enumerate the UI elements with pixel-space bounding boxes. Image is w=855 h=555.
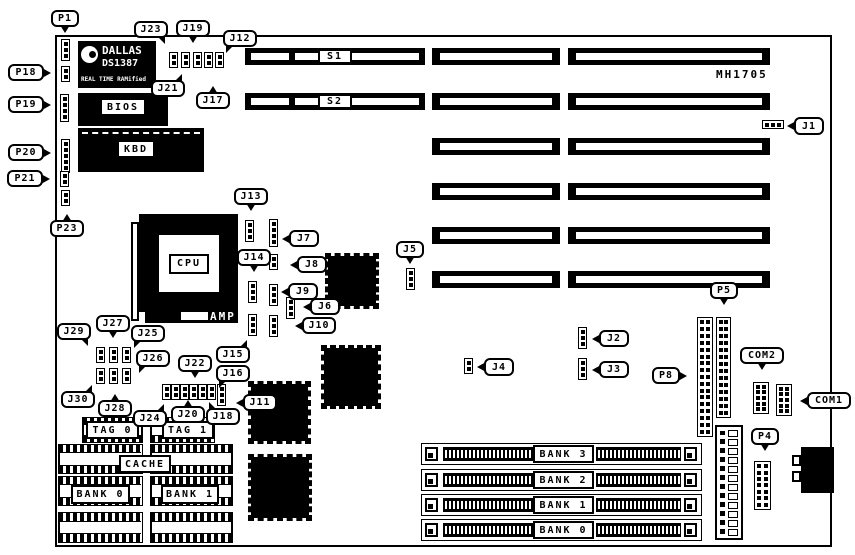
header-pin — [756, 390, 760, 394]
qfp-c — [248, 381, 311, 444]
callout-pointer — [188, 35, 198, 43]
jumper-pin — [467, 361, 471, 365]
label-bank0-cache: BANK 0 — [71, 485, 130, 504]
jumper-pin — [248, 229, 252, 233]
jumper-pin — [581, 361, 585, 365]
callout-p4: P4 — [751, 428, 779, 445]
callout-pointer — [678, 371, 687, 381]
power-pin — [728, 484, 738, 491]
jumper-pin — [183, 393, 187, 397]
header-pin — [706, 423, 710, 427]
label-cache: CACHE — [119, 455, 171, 473]
callout-j13: J13 — [234, 188, 268, 205]
expansion-slot-right-1 — [568, 48, 770, 65]
header-pin — [724, 411, 728, 415]
header-pin — [706, 389, 710, 393]
callout-pointer — [134, 340, 142, 348]
slot-opening — [576, 53, 762, 60]
simm-label-simm-bank3: BANK 3 — [533, 445, 594, 463]
callout-pointer — [42, 100, 51, 110]
jumper-pin — [64, 199, 68, 203]
jumper-pin — [64, 154, 68, 158]
slot-opening — [440, 143, 552, 150]
jumper-pin — [248, 235, 252, 239]
jumper-pin — [64, 75, 68, 79]
header-pin — [756, 385, 760, 389]
slot-opening — [251, 98, 289, 105]
callout-pointer — [219, 380, 227, 388]
header-pin — [719, 355, 723, 359]
jumper-pin — [218, 61, 222, 65]
header-pin — [724, 397, 728, 401]
header-pin — [779, 404, 783, 408]
power-pin — [728, 430, 738, 437]
callout-p1: P1 — [51, 10, 79, 27]
callout-pointer — [760, 443, 770, 451]
jumper-pin — [251, 296, 255, 300]
simm-latch-right — [684, 473, 697, 487]
callout-pointer — [226, 45, 234, 53]
slot-opening — [576, 232, 762, 239]
jumper-j7 — [269, 219, 278, 247]
callout-j30: J30 — [61, 391, 95, 408]
expansion-slot-right-3 — [568, 138, 770, 155]
header-pin — [762, 396, 766, 400]
jumper-pin — [248, 223, 252, 227]
kbd-chip-notch — [82, 132, 200, 134]
jumper-pin — [207, 61, 211, 65]
simm-contacts — [596, 523, 681, 537]
callout-pointer — [41, 174, 50, 184]
header-pin — [724, 320, 728, 324]
power-connector — [715, 425, 743, 540]
jumper-j15 — [248, 314, 257, 336]
jumper-pin — [409, 271, 413, 275]
expansion-slot-mid-3 — [432, 138, 560, 155]
header-pin — [785, 404, 789, 408]
callout-pointer — [174, 74, 182, 82]
callout-j3: J3 — [599, 361, 629, 378]
header-pin — [706, 348, 710, 352]
callout-j5: J5 — [396, 241, 424, 258]
din-mount-tab — [792, 471, 801, 482]
jumper-pin — [289, 306, 293, 310]
jumper-pin — [251, 317, 255, 321]
jumper-j26 — [122, 368, 131, 384]
jumper-pin — [172, 55, 176, 59]
header-pin — [756, 407, 760, 411]
callout-pointer — [60, 25, 70, 33]
jumper-pin — [174, 387, 178, 391]
jumper-j25 — [122, 347, 131, 363]
header-pin — [719, 334, 723, 338]
simm-latch-right — [684, 523, 697, 537]
callout-j10: J10 — [302, 317, 336, 334]
simm-socket-simm-bank2: BANK 2 — [421, 469, 702, 491]
jumper-pin — [581, 342, 585, 346]
cpu-label: CPU — [169, 254, 209, 274]
jumper-j19 — [193, 52, 202, 68]
slot-opening — [440, 98, 552, 105]
expansion-slot-right-2 — [568, 93, 770, 110]
jumper-p18 — [61, 66, 70, 82]
header-pin — [719, 320, 723, 324]
callout-pointer — [236, 398, 245, 408]
label-tag1: TAG 1 — [162, 421, 214, 439]
header-pin — [700, 368, 704, 372]
simm-latch-left — [425, 498, 438, 512]
header-pin — [724, 369, 728, 373]
bios-chip: BIOS — [78, 93, 168, 126]
motherboard-diagram: DALLAS DS1387 REAL TIME RAMified BIOS KB… — [0, 0, 855, 555]
callout-j1: J1 — [794, 117, 824, 135]
simm-latch-left — [425, 473, 438, 487]
jumper-pin — [183, 387, 187, 391]
header-pin — [724, 390, 728, 394]
pin-header-com1 — [776, 384, 792, 416]
jumper-pin — [125, 377, 129, 381]
jumper-j3 — [578, 358, 587, 380]
expansion-slot-mid-5 — [432, 227, 560, 244]
callout-pointer — [42, 148, 51, 158]
callout-pointer — [157, 36, 165, 44]
callout-j26: J26 — [136, 350, 170, 367]
jumper-p20 — [61, 139, 70, 173]
slot-opening — [295, 53, 419, 60]
header-pin — [700, 375, 704, 379]
header-pin — [719, 404, 723, 408]
jumper-pin — [99, 356, 103, 360]
header-pin — [700, 409, 704, 413]
jumper-pin — [63, 174, 67, 178]
header-pin — [706, 395, 710, 399]
dip-body — [60, 521, 141, 535]
jumper-j14 — [248, 281, 257, 303]
callout-j15: J15 — [216, 346, 250, 363]
jumper-pin — [64, 193, 68, 197]
header-pin — [700, 334, 704, 338]
header-pin — [706, 375, 710, 379]
power-rail — [720, 431, 725, 534]
simm-socket-simm-bank1: BANK 1 — [421, 494, 702, 516]
callout-pointer — [190, 370, 200, 378]
callout-j29: J29 — [57, 323, 91, 340]
callout-j14: J14 — [237, 249, 271, 266]
callout-pointer — [719, 297, 729, 305]
jumper-pin — [112, 356, 116, 360]
jumper-pin — [63, 115, 67, 119]
header-pin — [706, 402, 710, 406]
callout-pointer — [80, 338, 88, 346]
header-pin — [724, 383, 728, 387]
jumper-j20a — [180, 384, 189, 400]
simm-contacts — [596, 473, 681, 487]
slot-opening — [295, 98, 419, 105]
callout-com2: COM2 — [740, 347, 784, 364]
jumper-pin — [220, 399, 224, 403]
header-pin — [706, 382, 710, 386]
header-pin — [764, 496, 768, 500]
jumper-j12 — [215, 52, 224, 68]
dallas-rtc-chip: DALLAS DS1387 REAL TIME RAMified — [78, 41, 156, 88]
callout-j21: J21 — [151, 80, 185, 97]
jumper-pin — [125, 371, 129, 375]
header-pin — [757, 483, 761, 487]
jumper-pin — [272, 287, 276, 291]
jumper-pin — [64, 148, 68, 152]
slot-opening — [576, 188, 762, 195]
callout-j8: J8 — [297, 256, 327, 273]
jumper-pin — [174, 393, 178, 397]
header-pin — [757, 477, 761, 481]
jumper-pin — [289, 300, 293, 304]
jumper-j29 — [96, 347, 105, 363]
jumper-pin — [771, 123, 775, 127]
header-pin — [724, 334, 728, 338]
jumper-j4 — [464, 358, 473, 374]
jumper-pin — [251, 284, 255, 288]
callout-pointer — [84, 385, 92, 393]
power-pin — [728, 439, 738, 446]
jumper-pin — [218, 55, 222, 59]
header-pin — [764, 490, 768, 494]
callout-j28: J28 — [98, 400, 132, 417]
jumper-pin — [272, 324, 276, 328]
callout-pointer — [757, 362, 767, 370]
din-mount-tab — [792, 455, 801, 466]
jumper-pin — [409, 283, 413, 287]
jumper-j27 — [109, 347, 118, 363]
callout-j27: J27 — [96, 315, 130, 332]
header-pin — [719, 327, 723, 331]
jumper-p19 — [60, 94, 69, 122]
expansion-slot-mid-4 — [432, 183, 560, 200]
header-pin — [719, 348, 723, 352]
jumper-pin — [272, 263, 276, 267]
qfp-body — [252, 458, 308, 517]
jumper-pin — [63, 109, 67, 113]
dip-socket-cache-l3 — [58, 512, 143, 543]
power-pin — [728, 457, 738, 464]
header-pin — [700, 348, 704, 352]
jumper-j17 — [204, 52, 213, 68]
expansion-slot-mid-6 — [432, 271, 560, 288]
jumper-pin — [272, 257, 276, 261]
header-pin — [724, 341, 728, 345]
jumper-j23 — [169, 52, 178, 68]
header-pin — [779, 409, 783, 413]
jumper-pin — [201, 393, 205, 397]
kbd-label: KBD — [117, 140, 155, 158]
jumper-pin — [251, 329, 255, 333]
jumper-pin — [581, 367, 585, 371]
jumper-pin — [165, 387, 169, 391]
jumper-pin — [272, 318, 276, 322]
callout-pointer — [62, 214, 72, 222]
simm-contacts — [443, 498, 533, 512]
jumper-pin — [64, 42, 68, 46]
jumper-pin — [63, 103, 67, 107]
jumper-pin — [184, 61, 188, 65]
callout-pointer — [208, 86, 218, 94]
header-pin — [724, 348, 728, 352]
callout-j19: J19 — [176, 20, 210, 37]
header-pin — [757, 496, 761, 500]
header-pin — [764, 471, 768, 475]
jumper-pin — [272, 299, 276, 303]
header-pin — [700, 430, 704, 434]
header-pin — [706, 334, 710, 338]
jumper-j10 — [269, 315, 278, 337]
callout-pointer — [295, 321, 304, 331]
slot-opening — [440, 232, 552, 239]
slot-opening — [251, 53, 289, 60]
jumper-pin — [409, 277, 413, 281]
callout-p21: P21 — [7, 170, 43, 187]
header-pin — [757, 490, 761, 494]
header-pin — [700, 382, 704, 386]
callout-j17: J17 — [196, 92, 230, 109]
amp-window — [181, 312, 208, 320]
expansion-slot-mid-1 — [432, 48, 560, 65]
header-pin — [762, 402, 766, 406]
power-pin — [728, 529, 738, 536]
header-pin — [719, 411, 723, 415]
header-pin — [764, 477, 768, 481]
qfp-d — [248, 454, 312, 521]
simm-contacts — [596, 447, 681, 461]
header-pin — [706, 430, 710, 434]
header-pin — [719, 341, 723, 345]
expansion-slot-right-5 — [568, 227, 770, 244]
header-pin — [719, 369, 723, 373]
jumper-pin — [64, 48, 68, 52]
header-pin — [756, 396, 760, 400]
callout-pointer — [42, 68, 51, 78]
slot-label-s1: S1 — [318, 49, 352, 64]
jumper-pin — [210, 393, 214, 397]
header-pin — [785, 387, 789, 391]
header-pin — [779, 398, 783, 402]
cpu-socket-lever — [131, 222, 139, 321]
jumper-pin — [64, 166, 68, 170]
simm-latch-left — [425, 447, 438, 461]
callout-pointer — [592, 365, 601, 375]
header-pin — [719, 390, 723, 394]
header-pin — [706, 409, 710, 413]
jumper-pin — [63, 180, 67, 184]
callout-pointer — [239, 340, 247, 348]
callout-pointer — [209, 402, 217, 410]
header-pin — [719, 397, 723, 401]
header-pin — [756, 402, 760, 406]
callout-pointer — [592, 334, 601, 344]
expansion-slot-right-6 — [568, 271, 770, 288]
callout-j11: J11 — [243, 394, 277, 411]
callout-pointer — [477, 362, 486, 372]
jumper-pin — [289, 312, 293, 316]
jumper-pin — [192, 393, 196, 397]
callout-j22: J22 — [178, 355, 212, 372]
header-pin — [764, 464, 768, 468]
header-pin — [779, 387, 783, 391]
header-pin — [764, 483, 768, 487]
simm-latch-right — [684, 498, 697, 512]
jumper-p23 — [61, 190, 70, 206]
jumper-pin — [196, 55, 200, 59]
header-pin — [719, 383, 723, 387]
power-pin — [728, 502, 738, 509]
header-pin — [700, 361, 704, 365]
callout-pointer — [281, 287, 290, 297]
header-pin — [706, 320, 710, 324]
power-pin — [728, 493, 738, 500]
label-bank1-cache: BANK 1 — [161, 485, 219, 504]
simm-socket-simm-bank3: BANK 3 — [421, 443, 702, 465]
simm-contacts — [443, 447, 533, 461]
jumper-j2 — [578, 327, 587, 349]
jumper-pin — [210, 387, 214, 391]
jumper-pin — [220, 393, 224, 397]
callout-pointer — [246, 203, 256, 211]
jumper-pin — [251, 323, 255, 327]
simm-socket-simm-bank0: BANK 0 — [421, 519, 702, 541]
jumper-pin — [777, 123, 781, 127]
header-pin — [724, 355, 728, 359]
jumper-pin — [251, 290, 255, 294]
jumper-j18 — [198, 384, 207, 400]
header-pin — [700, 416, 704, 420]
callout-com1: COM1 — [807, 392, 851, 409]
power-pin-column — [728, 430, 738, 536]
power-pin — [728, 466, 738, 473]
amp-label: AMP — [210, 310, 236, 323]
callout-p5: P5 — [710, 282, 738, 299]
jumper-j16 — [207, 384, 216, 400]
jumper-j24 — [162, 384, 171, 400]
expansion-slot-mid-2 — [432, 93, 560, 110]
qfp-body — [325, 349, 377, 405]
callout-pointer — [282, 234, 291, 244]
header-pin — [700, 320, 704, 324]
header-pin — [700, 355, 704, 359]
jumper-p21 — [60, 171, 69, 187]
jumper-pin — [272, 222, 276, 226]
pin-header-p4 — [754, 461, 771, 510]
jumper-pin — [581, 336, 585, 340]
jumper-j30 — [96, 368, 105, 384]
header-pin — [719, 362, 723, 366]
callout-pointer — [110, 394, 120, 402]
jumper-pin — [99, 377, 103, 381]
pin-header-com2 — [753, 382, 769, 414]
simm-contacts — [443, 473, 533, 487]
header-pin — [757, 503, 761, 507]
pin-header-p8 — [697, 317, 713, 437]
simm-latch-left — [425, 523, 438, 537]
dallas-chip-model: DS1387 — [102, 58, 138, 69]
simm-contacts — [443, 523, 533, 537]
jumper-j13 — [245, 220, 254, 242]
header-pin — [757, 471, 761, 475]
callout-p8: P8 — [652, 367, 680, 384]
board-id-text: MH1705 — [716, 68, 768, 81]
header-pin — [779, 392, 783, 396]
jumper-p1 — [61, 39, 70, 61]
slot-opening — [440, 53, 552, 60]
jumper-pin — [165, 393, 169, 397]
header-pin — [719, 376, 723, 380]
